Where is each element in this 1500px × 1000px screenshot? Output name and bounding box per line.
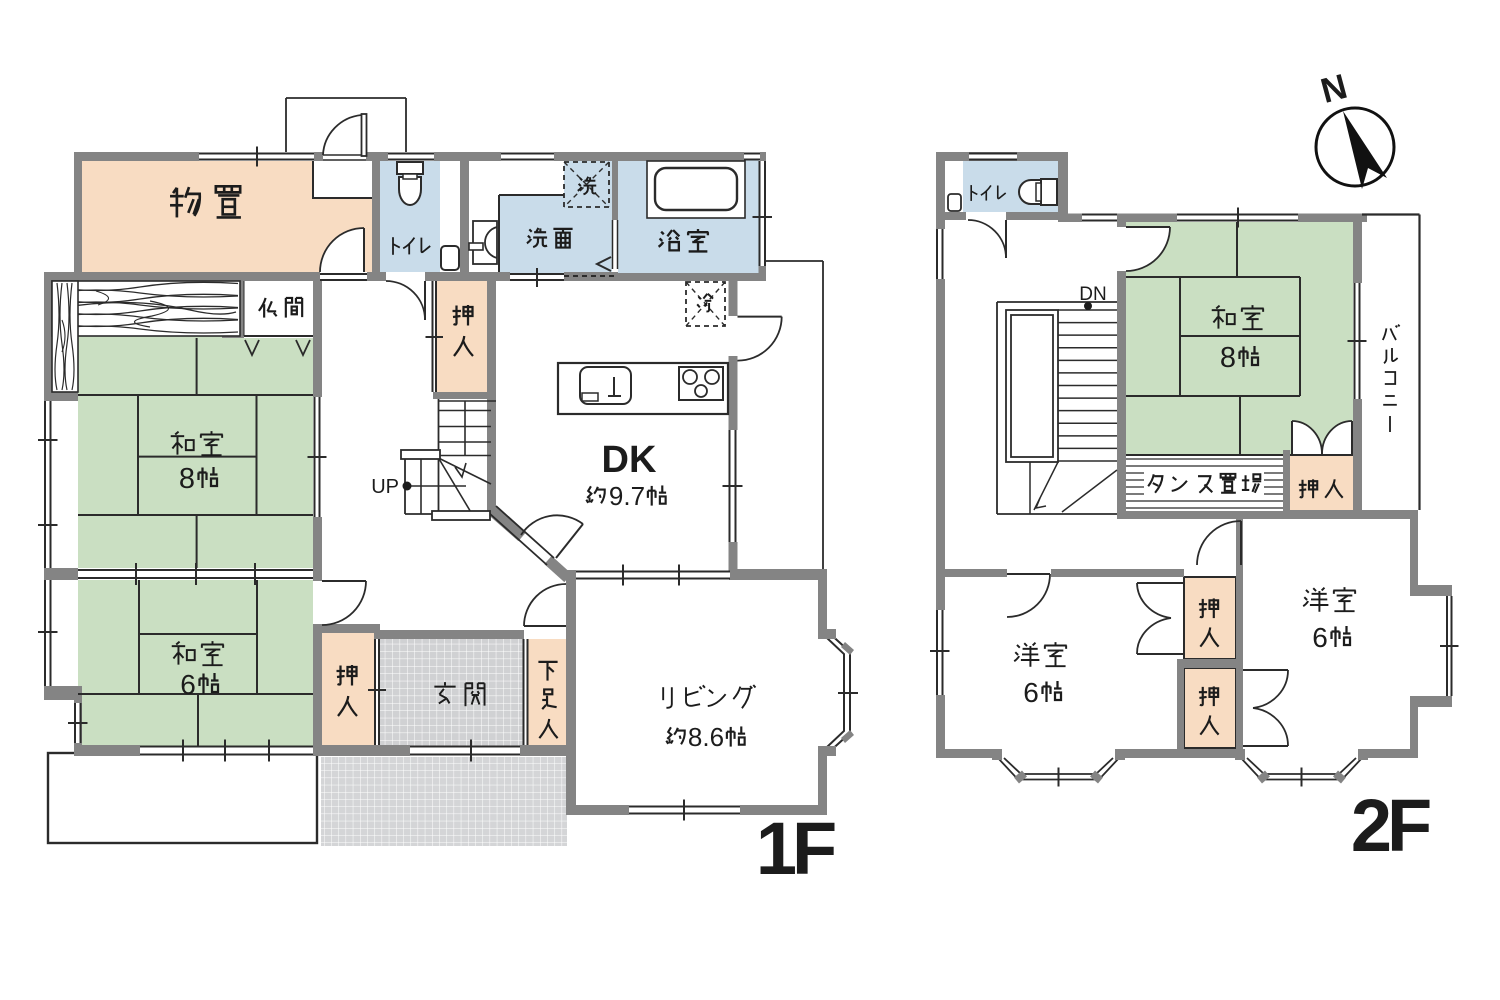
svg-text:1F: 1F bbox=[756, 807, 835, 890]
svg-text:6: 6 bbox=[1023, 677, 1039, 708]
svg-text:9.7: 9.7 bbox=[609, 481, 645, 511]
svg-text:DN: DN bbox=[1079, 284, 1106, 305]
svg-text:UP: UP bbox=[371, 476, 399, 498]
svg-text:2F: 2F bbox=[1351, 784, 1430, 867]
svg-text:8: 8 bbox=[1220, 342, 1236, 374]
svg-text:6: 6 bbox=[1312, 622, 1328, 653]
svg-text:DK: DK bbox=[602, 439, 657, 481]
svg-text:6: 6 bbox=[180, 669, 196, 700]
svg-text:8.6: 8.6 bbox=[688, 722, 724, 752]
svg-text:8: 8 bbox=[179, 463, 195, 495]
